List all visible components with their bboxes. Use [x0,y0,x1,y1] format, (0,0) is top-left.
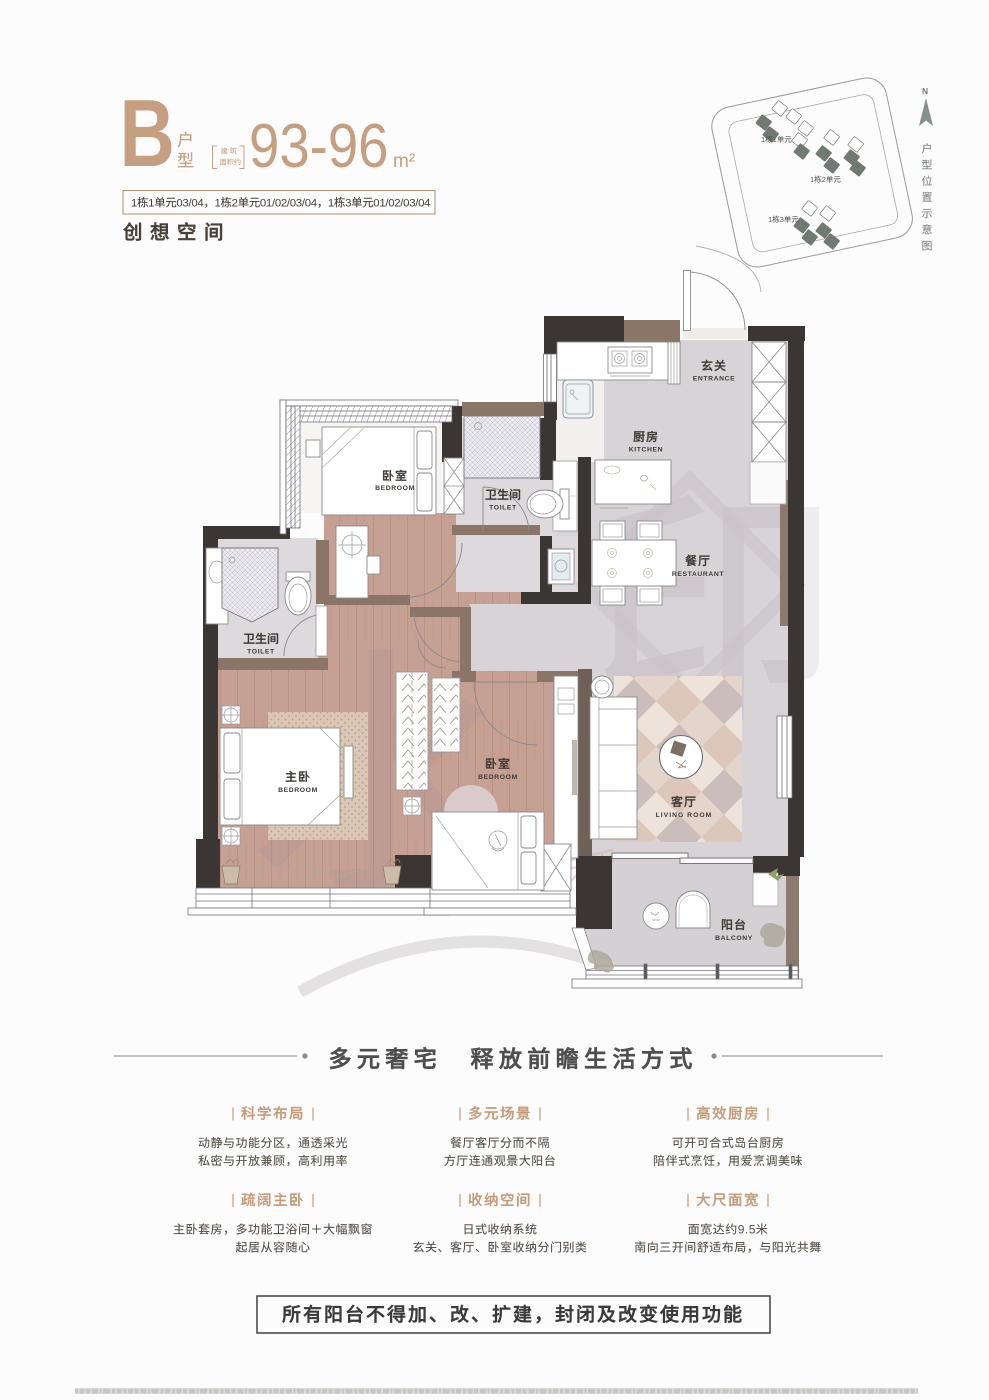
svg-text:BEDROOM: BEDROOM [278,787,318,794]
svg-text:TOILET: TOILET [489,505,517,512]
svg-text:93-96: 93-96 [249,112,388,181]
svg-text:1: 1 [810,175,814,184]
svg-text:03/04: 03/04 [176,198,203,210]
svg-text:LIVING ROOM: LIVING ROOM [656,812,713,819]
svg-text:1: 1 [215,198,221,210]
svg-text:3: 3 [780,215,784,224]
svg-text:01/02/03/04: 01/02/03/04 [260,198,317,210]
svg-text:BALCONY: BALCONY [715,935,753,942]
svg-text:1: 1 [131,198,137,210]
svg-text:2: 2 [822,175,826,184]
svg-text:RESTAURANT: RESTAURANT [672,571,725,578]
svg-text:01/02/03/04: 01/02/03/04 [373,198,430,210]
svg-text:m²: m² [393,151,415,172]
svg-text:BEDROOM: BEDROOM [375,485,415,492]
svg-text:1: 1 [768,215,772,224]
svg-text:2: 2 [232,198,238,210]
svg-text:BEDROOM: BEDROOM [478,774,518,781]
svg-text:3: 3 [345,198,351,210]
svg-text:N: N [922,86,928,96]
svg-text:1: 1 [761,135,765,144]
svg-text:1: 1 [328,198,334,210]
svg-text:ENTRANCE: ENTRANCE [693,376,736,383]
svg-text:1: 1 [773,135,777,144]
svg-text:B: B [120,80,175,187]
svg-text:KITCHEN: KITCHEN [629,447,663,454]
svg-text:TOILET: TOILET [247,649,275,656]
svg-text:9.5: 9.5 [738,1223,756,1237]
svg-text:1: 1 [148,198,154,210]
